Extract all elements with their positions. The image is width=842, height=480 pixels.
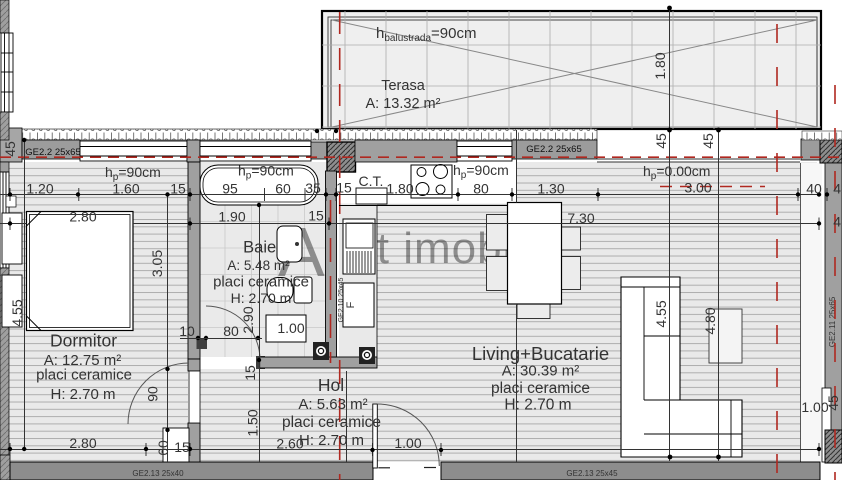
svg-text:1.50: 1.50 — [245, 409, 261, 436]
svg-text:placi ceramice: placi ceramice — [213, 274, 309, 291]
svg-text:3.00: 3.00 — [684, 180, 711, 196]
svg-text:C.T.: C.T. — [359, 173, 384, 189]
svg-text:45: 45 — [825, 395, 841, 411]
svg-text:F: F — [345, 301, 357, 308]
svg-text:15: 15 — [170, 181, 186, 197]
svg-text:A: 13.32 m²: A: 13.32 m² — [366, 96, 441, 112]
svg-text:95: 95 — [222, 181, 238, 197]
svg-text:1.90: 1.90 — [218, 209, 245, 225]
svg-text:3.05: 3.05 — [149, 250, 165, 277]
svg-text:1.80: 1.80 — [386, 181, 413, 197]
svg-text:A: 5.63 m²: A: 5.63 m² — [298, 396, 367, 413]
svg-text:15: 15 — [174, 439, 190, 455]
svg-text:80: 80 — [473, 181, 489, 197]
svg-text:45: 45 — [2, 141, 18, 157]
svg-text:placi ceramice: placi ceramice — [491, 380, 590, 397]
svg-text:45: 45 — [653, 133, 669, 149]
svg-text:4.55: 4.55 — [9, 299, 25, 326]
svg-text:45: 45 — [833, 214, 842, 230]
svg-text:GE2.13 25x45: GE2.13 25x45 — [566, 469, 618, 478]
svg-text:H: 2.70 m: H: 2.70 m — [50, 386, 115, 403]
svg-text:Living+Bucatarie: Living+Bucatarie — [472, 343, 609, 364]
svg-text:1.30: 1.30 — [537, 181, 564, 197]
svg-text:4.80: 4.80 — [702, 307, 718, 334]
svg-text:GE2.2 25x65: GE2.2 25x65 — [25, 147, 80, 158]
svg-text:GE2.2 25x65: GE2.2 25x65 — [526, 144, 581, 155]
svg-text:90: 90 — [145, 386, 161, 402]
svg-text:A: 30.39 m²: A: 30.39 m² — [502, 363, 580, 380]
svg-text:2.80: 2.80 — [69, 209, 96, 225]
svg-text:80: 80 — [223, 323, 239, 339]
svg-text:H: 2.70 m: H: 2.70 m — [504, 397, 571, 414]
svg-text:Terasa: Terasa — [381, 78, 425, 94]
svg-text:4.55: 4.55 — [653, 300, 669, 327]
svg-text:15: 15 — [336, 180, 352, 196]
svg-text:Baie: Baie — [243, 239, 276, 257]
svg-text:15: 15 — [308, 208, 324, 224]
svg-text:1.00: 1.00 — [394, 435, 421, 451]
svg-text:H: 2.70 m: H: 2.70 m — [231, 290, 292, 306]
svg-text:45: 45 — [700, 133, 716, 149]
svg-text:1.20: 1.20 — [26, 181, 53, 197]
svg-text:1.80: 1.80 — [652, 52, 668, 79]
svg-text:Dormitor: Dormitor — [50, 331, 117, 351]
svg-text:Hol: Hol — [318, 375, 344, 395]
svg-text:placi ceramice: placi ceramice — [282, 414, 381, 431]
svg-text:15: 15 — [242, 365, 258, 381]
svg-text:2.90: 2.90 — [240, 306, 256, 333]
svg-text:1.00: 1.00 — [277, 320, 304, 336]
svg-text:placi ceramice: placi ceramice — [36, 367, 132, 384]
svg-text:35: 35 — [305, 180, 321, 196]
svg-text:A: 5.48 m²: A: 5.48 m² — [227, 258, 290, 273]
svg-text:60: 60 — [275, 181, 291, 197]
svg-text:7.30: 7.30 — [567, 210, 594, 226]
svg-text:2.80: 2.80 — [69, 435, 96, 451]
svg-text:GE2.13 25x40: GE2.13 25x40 — [132, 469, 184, 478]
svg-text:H: 2.70 m: H: 2.70 m — [299, 432, 364, 449]
svg-text:40: 40 — [806, 181, 822, 197]
svg-text:60: 60 — [155, 440, 171, 456]
svg-text:45: 45 — [833, 181, 842, 197]
svg-text:10: 10 — [179, 323, 195, 339]
